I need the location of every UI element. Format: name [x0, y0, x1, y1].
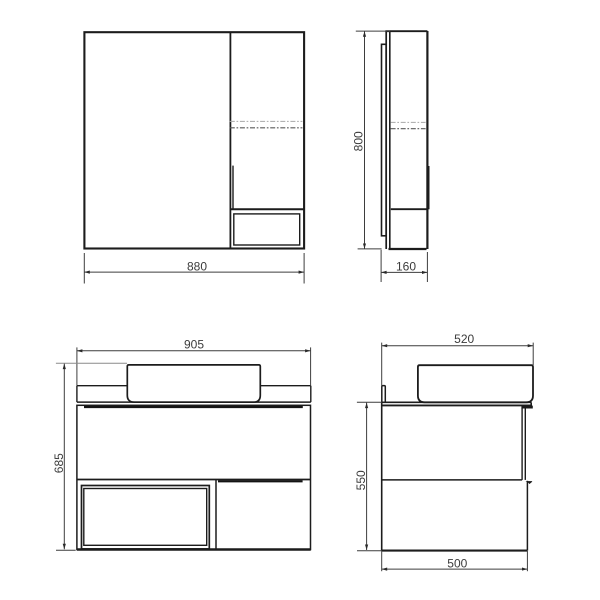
- svg-text:880: 880: [187, 259, 207, 273]
- svg-text:160: 160: [396, 259, 416, 273]
- svg-text:520: 520: [454, 332, 474, 346]
- svg-text:905: 905: [184, 338, 204, 352]
- svg-text:685: 685: [52, 453, 66, 473]
- svg-text:550: 550: [354, 470, 368, 490]
- svg-text:500: 500: [447, 557, 467, 571]
- svg-text:800: 800: [352, 131, 366, 151]
